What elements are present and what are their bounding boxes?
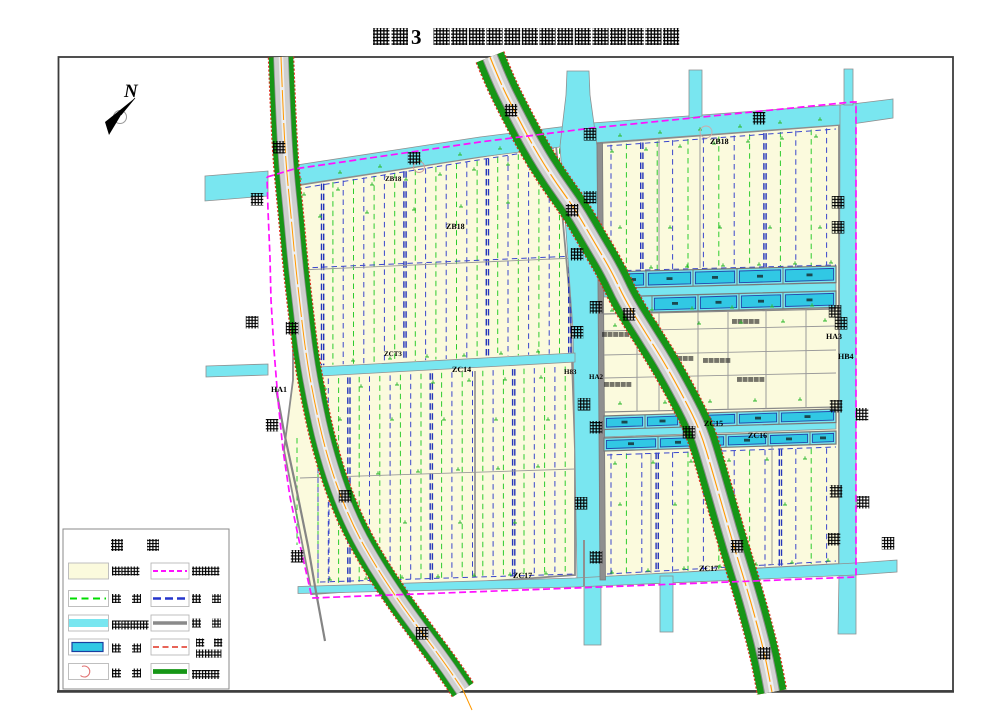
svg-text:H83: H83: [564, 368, 577, 376]
svg-text:3: 3: [411, 25, 422, 49]
svg-text:ZB18: ZB18: [710, 137, 729, 146]
svg-text:ZB18: ZB18: [385, 175, 402, 183]
svg-text:ZC14: ZC14: [452, 365, 471, 374]
svg-text:HA2: HA2: [589, 373, 604, 381]
svg-text:ZC16: ZC16: [748, 431, 767, 440]
svg-text:HA1: HA1: [271, 385, 287, 394]
svg-text:ZCT3: ZCT3: [384, 350, 402, 358]
svg-text:ZC17: ZC17: [513, 571, 532, 580]
svg-text:ZC15: ZC15: [704, 419, 723, 428]
svg-text:HA3: HA3: [826, 332, 842, 341]
svg-text:N: N: [123, 81, 139, 102]
svg-text:ZC17: ZC17: [699, 564, 718, 573]
svg-text:HB4: HB4: [838, 352, 854, 361]
svg-text:ZB18: ZB18: [446, 222, 465, 231]
